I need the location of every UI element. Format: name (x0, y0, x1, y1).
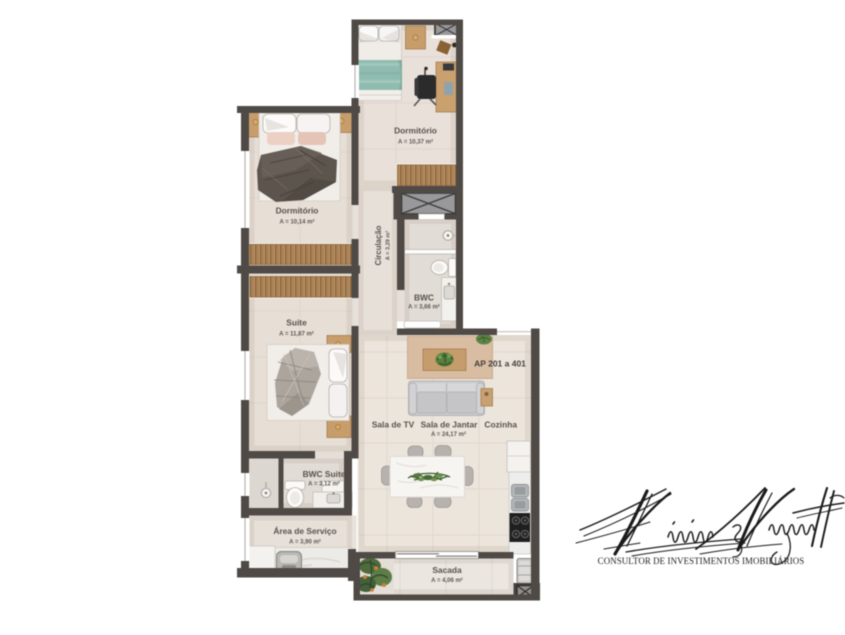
svg-text:Dormitório: Dormitório (276, 206, 319, 216)
svg-text:A = 11,87 m²: A = 11,87 m² (279, 331, 314, 338)
svg-text:BWC: BWC (414, 293, 434, 303)
svg-text:Circulação: Circulação (374, 225, 383, 265)
svg-text:Sacada: Sacada (432, 565, 462, 575)
svg-text:A = 10,37 m²: A = 10,37 m² (398, 139, 433, 146)
svg-text:A = 3,66 m²: A = 3,66 m² (408, 304, 440, 311)
svg-text:Suite: Suite (286, 318, 307, 328)
svg-text:A = 4,06 m²: A = 4,06 m² (431, 577, 463, 584)
svg-text:CONSULTOR DE INVESTIMENTOS IMO: CONSULTOR DE INVESTIMENTOS IMOBILIÁRIOS (598, 556, 805, 566)
svg-text:A = 3,29 m²: A = 3,29 m² (385, 231, 392, 261)
svg-text:Sala de TV: Sala de TV (372, 420, 415, 430)
svg-text:A = 3,90 m²: A = 3,90 m² (289, 539, 321, 546)
svg-text:A = 24,17 m²: A = 24,17 m² (431, 431, 466, 438)
svg-text:Sala de Jantar: Sala de Jantar (421, 420, 479, 430)
svg-text:A = 3,12 m²: A = 3,12 m² (308, 481, 340, 488)
svg-text:Cozinha: Cozinha (484, 420, 517, 430)
svg-text:AP 201 a 401: AP 201 a 401 (474, 359, 526, 369)
svg-text:Área de Serviço: Área de Serviço (273, 525, 336, 536)
svg-text:A = 10,14 m²: A = 10,14 m² (280, 219, 315, 226)
svg-text:BWC Suite: BWC Suite (303, 469, 346, 479)
svg-text:Dormitório: Dormitório (394, 126, 437, 136)
